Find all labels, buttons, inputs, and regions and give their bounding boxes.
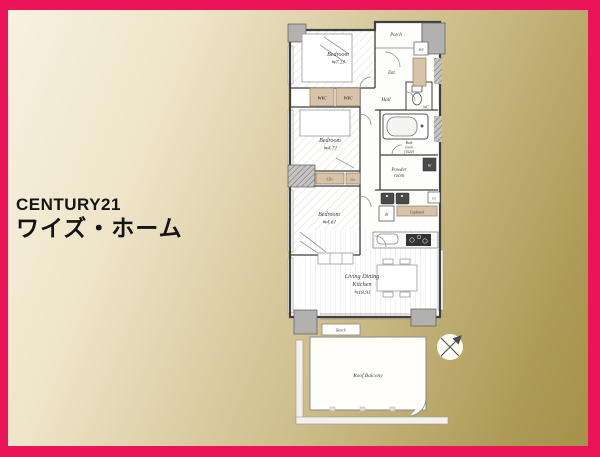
cupboard-label: Cupboard	[410, 211, 425, 215]
boundary-hatch-upper	[434, 58, 442, 84]
bedroom2-size: ≒4.7J	[323, 146, 337, 152]
wic-left-label: WIC	[318, 96, 328, 101]
ldk-name-1: Living Dining	[344, 273, 380, 280]
pillar-hatch-left	[288, 165, 315, 187]
porch-label: Porch	[389, 33, 402, 38]
agency-store-name: ワイズ・ホーム	[16, 215, 183, 241]
bedroom3-name: Bedroom	[318, 212, 340, 218]
bedroom1-name: Bedroom	[327, 52, 349, 58]
bedroom2-name: Bedroom	[319, 138, 341, 144]
wc-label: WC	[423, 106, 429, 110]
bath-label-3: (1620)	[404, 150, 414, 154]
compass-icon	[437, 334, 463, 360]
sofa-icon	[318, 253, 353, 264]
storage-label: Sto.	[350, 178, 355, 182]
bedroom3-size: ≒4.6J	[322, 220, 336, 226]
dining-table-icon	[377, 259, 417, 297]
powder-label-2: room	[394, 174, 404, 179]
bathtub-icon	[383, 114, 428, 139]
closet-label: Clo.	[326, 177, 333, 182]
boundary-hatch-lower	[434, 116, 442, 142]
kitchen-counter	[373, 232, 438, 248]
ldk-name-2: Kitchen	[351, 281, 371, 288]
ps-label: PS	[431, 197, 436, 201]
floor-plan: Porch MB Ent. Bedroom ≒7.2J WIC WIC Hall…	[280, 10, 470, 434]
bath-label-2: room	[405, 146, 413, 150]
pillar-balcony-right	[411, 309, 436, 326]
roof-balcony-label: Roof Balcony	[352, 372, 383, 379]
agency-brand-name: CENTURY21	[16, 195, 183, 215]
bed-bedroom1	[302, 34, 352, 82]
pillar-balcony-left	[294, 310, 317, 334]
ldk-size: ≒18.9J	[354, 290, 371, 296]
agency-branding: CENTURY21 ワイズ・ホーム	[16, 195, 183, 242]
hall-label: Hall	[380, 97, 391, 103]
bath-label-1: Bath	[406, 141, 413, 145]
bedroom1-size: ≒7.2J	[331, 60, 345, 66]
wic-right-label: WIC	[344, 96, 354, 101]
fridge-label: R	[384, 212, 388, 217]
mb-label: MB	[418, 48, 424, 52]
powder-label-1: Powder	[391, 168, 407, 173]
shoe-cabinet	[413, 58, 426, 86]
ent-label: Ent.	[387, 71, 396, 76]
bench-label: Bench	[336, 328, 346, 333]
